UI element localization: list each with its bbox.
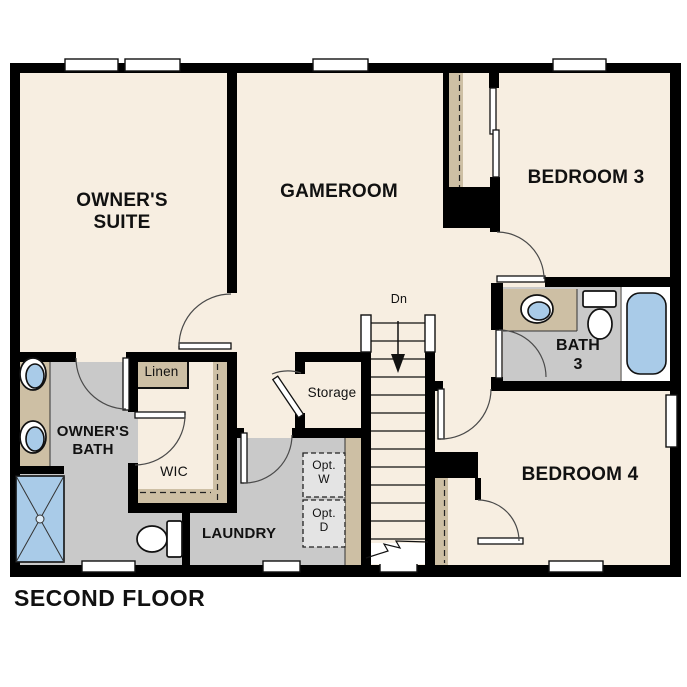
window — [263, 561, 300, 572]
bedroom4-block — [430, 452, 478, 478]
stair-railing — [361, 315, 371, 352]
door-leaf — [179, 343, 231, 349]
door-leaf — [497, 276, 545, 282]
door-leaf — [496, 330, 502, 378]
floor-plan: OWNER'S SUITE GAMEROOM BEDROOM 3 BEDROOM… — [0, 0, 687, 687]
window — [65, 59, 118, 71]
window — [549, 561, 603, 572]
window — [313, 59, 368, 71]
storage-label: Storage — [301, 385, 363, 401]
stairs-down-label: Dn — [383, 292, 415, 307]
bypass-door-panel — [490, 88, 496, 134]
laundry-label: LAUNDRY — [202, 525, 292, 543]
shower — [16, 476, 64, 562]
door-leaf — [135, 412, 185, 418]
window — [553, 59, 606, 71]
optional-dryer-label: Opt. D — [309, 506, 339, 534]
owners-bath-sink — [20, 358, 46, 390]
bedroom3-closet-shelf — [449, 73, 463, 190]
door-leaf — [478, 538, 523, 544]
wic-label: WIC — [144, 463, 204, 480]
window — [125, 59, 180, 71]
linen-label: Linen — [135, 364, 188, 380]
door-leaf — [123, 358, 129, 410]
bypass-door-panel — [493, 130, 499, 177]
door-leaf — [438, 389, 444, 439]
gameroom-label: GAMEROOM — [269, 181, 409, 203]
wic-shelf-bottom — [138, 489, 213, 503]
door-leaf — [241, 433, 247, 483]
owners-bath-sink — [20, 421, 46, 453]
optional-washer-label: Opt. W — [309, 458, 339, 486]
owners-bath-label: OWNER'S BATH — [46, 423, 140, 458]
window — [82, 561, 135, 572]
bathtub — [627, 293, 666, 374]
bath3-sink — [521, 295, 553, 323]
window — [666, 395, 677, 447]
bedroom3-label: BEDROOM 3 — [506, 167, 666, 189]
owners-suite-label: OWNER'S SUITE — [57, 190, 187, 235]
wic-shelf-right — [213, 362, 227, 503]
stair-railing — [425, 315, 435, 352]
chase-block — [443, 187, 497, 228]
bedroom4-label: BEDROOM 4 — [500, 464, 660, 486]
bedroom4-closet-shelf — [433, 478, 448, 565]
plan-title: SECOND FLOOR — [14, 585, 205, 612]
bath3-label: BATH 3 — [555, 337, 601, 375]
laundry-shelf — [345, 438, 361, 565]
